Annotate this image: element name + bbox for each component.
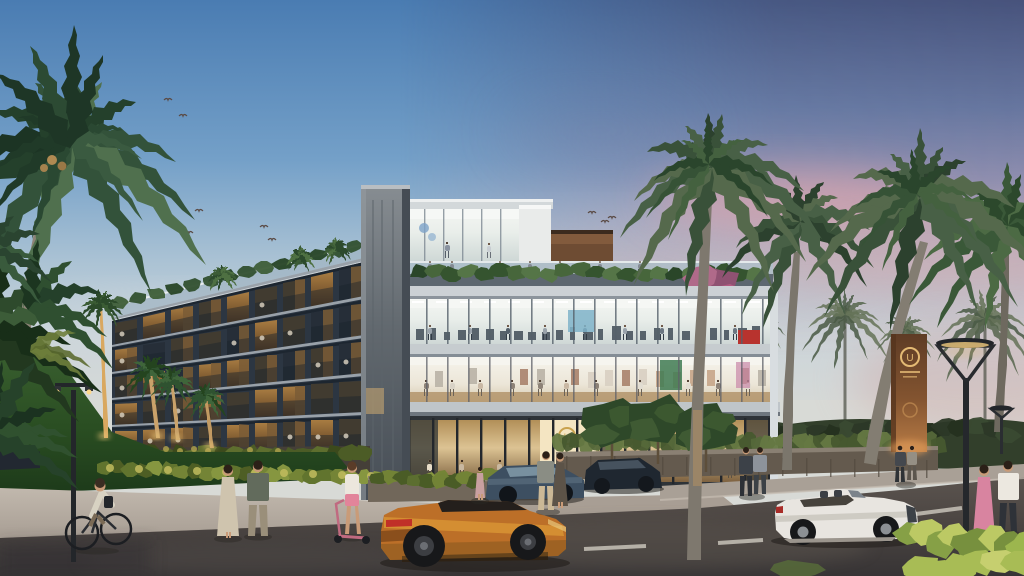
- svg-text:U: U: [906, 353, 913, 364]
